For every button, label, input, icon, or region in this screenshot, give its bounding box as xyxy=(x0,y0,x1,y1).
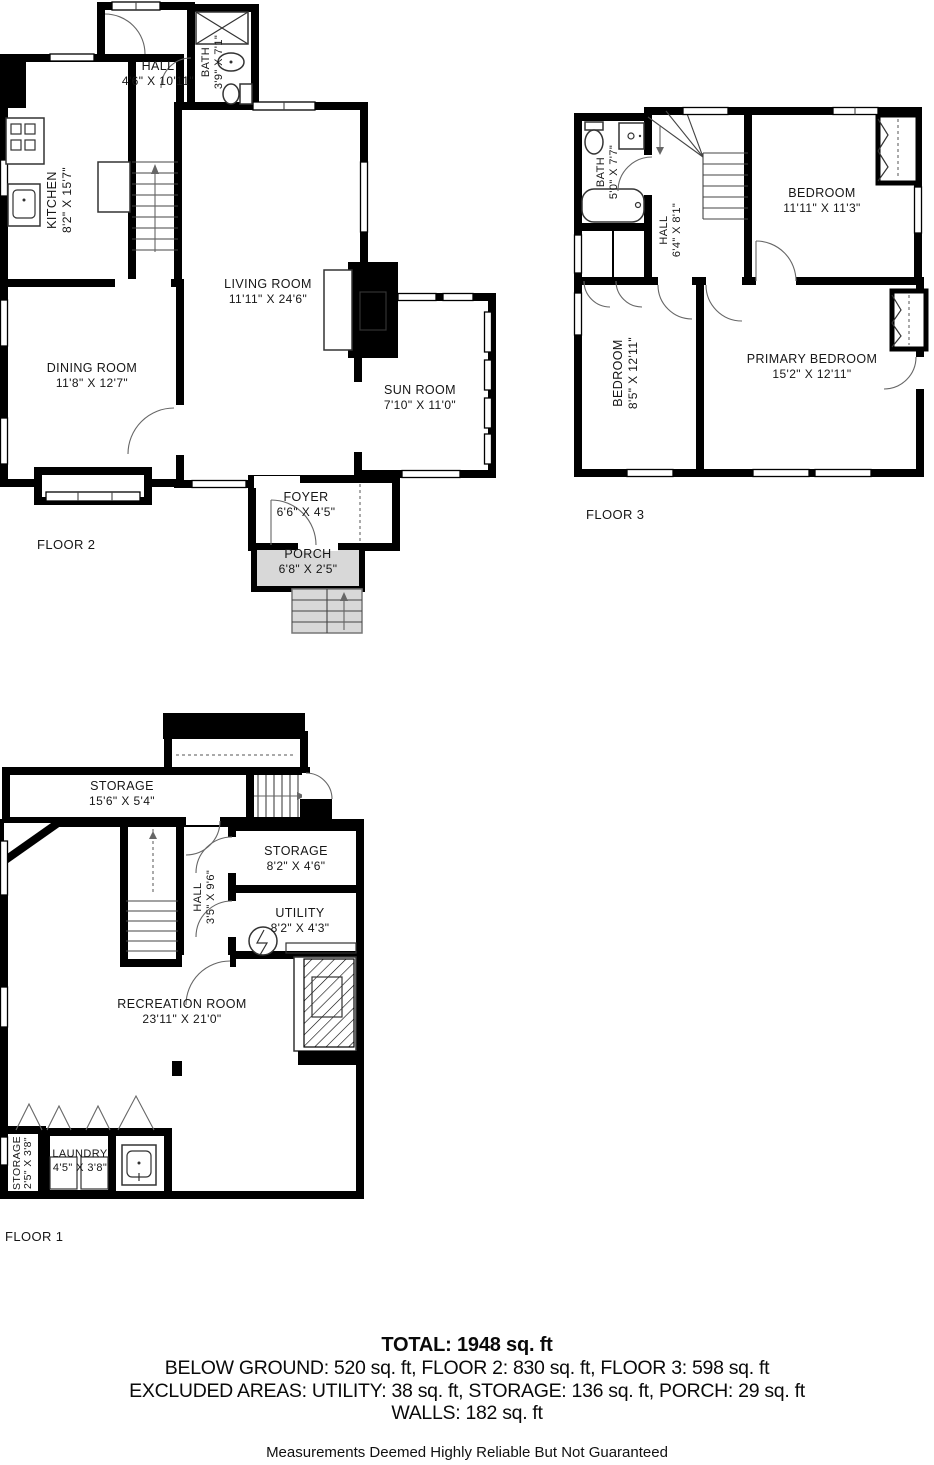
svg-text:PORCH: PORCH xyxy=(284,547,331,561)
label-bedroom-left: BEDROOM 8'5" X 12'11" xyxy=(611,337,640,409)
svg-text:3'9" X 7'1": 3'9" X 7'1" xyxy=(213,35,225,89)
fireplace-floor2 xyxy=(324,262,398,358)
opening-living-foyer xyxy=(254,476,300,488)
label-utility: UTILITY 8'2" X 4'3" xyxy=(271,906,330,935)
svg-text:11'8" X 12'7": 11'8" X 12'7" xyxy=(56,376,128,390)
label-porch: PORCH 6'8" X 2'5" xyxy=(279,547,338,576)
svg-text:KITCHEN: KITCHEN xyxy=(45,171,59,229)
svg-text:DINING ROOM: DINING ROOM xyxy=(47,361,138,375)
kitchen-sink-icon xyxy=(8,184,40,226)
label-foyer: FOYER 6'6" X 4'5" xyxy=(277,490,336,519)
label-kitchen: KITCHEN 8'2" X 15'7" xyxy=(45,167,74,233)
disclaimer-line: Measurements Deemed Highly Reliable But … xyxy=(0,1444,934,1461)
svg-text:BATH: BATH xyxy=(200,47,212,77)
bay-window-dining xyxy=(38,471,148,501)
floor1-plan: STORAGE 15'6" X 5'4" HALL 3'5" X 9'6" ST… xyxy=(0,705,380,1250)
svg-text:6'8" X 2'5": 6'8" X 2'5" xyxy=(279,562,338,576)
floor2-label: FLOOR 2 xyxy=(37,537,95,552)
floorplan-page: HALL 4'6" X 10'11" BATH 3'9" X 7'1" KITC… xyxy=(0,0,934,1465)
label-storage-mid: STORAGE 8'2" X 4'6" xyxy=(264,844,328,873)
area-summary: TOTAL: 1948 sq. ft BELOW GROUND: 520 sq.… xyxy=(0,1334,934,1425)
svg-text:4'5" X 3'8": 4'5" X 3'8" xyxy=(53,1162,107,1174)
svg-text:PRIMARY BEDROOM: PRIMARY BEDROOM xyxy=(747,352,878,366)
svg-text:8'5" X 12'11": 8'5" X 12'11" xyxy=(626,337,640,409)
opening-primary xyxy=(706,277,742,285)
walls-area-line: WALLS: 182 sq. ft xyxy=(0,1402,934,1425)
svg-text:LIVING ROOM: LIVING ROOM xyxy=(224,277,312,291)
opening-living-sunroom xyxy=(352,382,364,452)
svg-text:11'11" X 24'6": 11'11" X 24'6" xyxy=(229,292,307,306)
opening-dining-living xyxy=(174,405,186,455)
svg-text:5'0" X 7'7": 5'0" X 7'7" xyxy=(608,145,620,199)
svg-text:FOYER: FOYER xyxy=(283,490,328,504)
excluded-areas-line: EXCLUDED AREAS: UTILITY: 38 sq. ft, STOR… xyxy=(0,1380,934,1403)
label-dining: DINING ROOM 11'8" X 12'7" xyxy=(47,361,138,390)
svg-text:HALL: HALL xyxy=(142,59,175,73)
svg-text:6'6" X 4'5": 6'6" X 4'5" xyxy=(277,505,336,519)
label-bedroom-top: BEDROOM 11'11" X 11'3" xyxy=(783,186,860,215)
svg-text:HALL: HALL xyxy=(658,215,670,244)
label-storage-small: STORAGE 2'5" X 3'8" xyxy=(11,1136,34,1190)
total-area-line: TOTAL: 1948 sq. ft xyxy=(0,1334,934,1357)
svg-text:UTILITY: UTILITY xyxy=(275,906,325,920)
opening-primary-right xyxy=(912,357,924,389)
closet-primary xyxy=(892,291,926,349)
svg-text:6'4" X 8'1": 6'4" X 8'1" xyxy=(671,203,683,257)
svg-text:15'2" X 12'11": 15'2" X 12'11" xyxy=(772,367,851,381)
stairwell-floor1 xyxy=(124,823,180,963)
opening-kitchen-dining xyxy=(115,279,171,291)
sink-icon xyxy=(619,123,644,149)
label-sunroom: SUN ROOM 7'10" X 11'0" xyxy=(384,383,456,412)
svg-text:LAUNDRY: LAUNDRY xyxy=(52,1148,107,1160)
svg-text:STORAGE: STORAGE xyxy=(90,779,154,793)
toilet-icon xyxy=(223,84,252,104)
svg-text:7'10" X 11'0": 7'10" X 11'0" xyxy=(384,398,456,412)
toilet-icon xyxy=(585,122,603,154)
stair-hall-floor3 xyxy=(648,111,748,281)
label-living: LIVING ROOM 11'11" X 24'6" xyxy=(224,277,312,306)
laundry-sink-icon xyxy=(122,1145,156,1185)
svg-text:3'5" X 9'6": 3'5" X 9'6" xyxy=(205,870,217,924)
svg-text:4'6" X 10'11": 4'6" X 10'11" xyxy=(122,74,194,88)
svg-text:BATH: BATH xyxy=(595,157,607,187)
floor-areas-line: BELOW GROUND: 520 sq. ft, FLOOR 2: 830 s… xyxy=(0,1357,934,1380)
room-storage-mid xyxy=(232,827,360,889)
svg-text:RECREATION ROOM: RECREATION ROOM xyxy=(117,997,246,1011)
support-post xyxy=(172,1061,182,1076)
svg-text:11'11" X 11'3": 11'11" X 11'3" xyxy=(783,201,860,215)
floor3-plan: BATH 5'0" X 7'7" HALL 6'4" X 8'1" BEDROO… xyxy=(560,95,934,535)
label-storage-top: STORAGE 15'6" X 5'4" xyxy=(89,779,155,808)
svg-text:15'6" X 5'4": 15'6" X 5'4" xyxy=(89,794,155,808)
floor2-plan: HALL 4'6" X 10'11" BATH 3'9" X 7'1" KITC… xyxy=(0,0,500,645)
floor3-label: FLOOR 3 xyxy=(586,507,644,522)
svg-text:8'2" X 4'6": 8'2" X 4'6" xyxy=(267,859,326,873)
svg-text:STORAGE: STORAGE xyxy=(264,844,328,858)
svg-text:8'2" X 4'3": 8'2" X 4'3" xyxy=(271,921,330,935)
opening-bedroom-top xyxy=(756,277,796,285)
svg-text:SUN ROOM: SUN ROOM xyxy=(384,383,456,397)
svg-text:BEDROOM: BEDROOM xyxy=(611,339,625,406)
wall-corner-block xyxy=(0,55,26,108)
closet-bedroom-top xyxy=(878,115,918,183)
svg-text:HALL: HALL xyxy=(192,882,204,911)
stove-icon xyxy=(6,118,44,164)
opening-bedroom-left xyxy=(658,277,692,285)
fireplace-floor1 xyxy=(294,957,360,1065)
svg-text:8'2" X 15'7": 8'2" X 15'7" xyxy=(60,167,74,233)
floor1-label: FLOOR 1 xyxy=(5,1229,63,1244)
svg-text:23'11" X 21'0": 23'11" X 21'0" xyxy=(142,1012,221,1026)
svg-text:2'5" X 3'8": 2'5" X 3'8" xyxy=(22,1137,34,1189)
svg-text:BEDROOM: BEDROOM xyxy=(788,186,855,200)
opening-bath-hall3 xyxy=(644,155,652,195)
porch-steps xyxy=(292,589,362,633)
